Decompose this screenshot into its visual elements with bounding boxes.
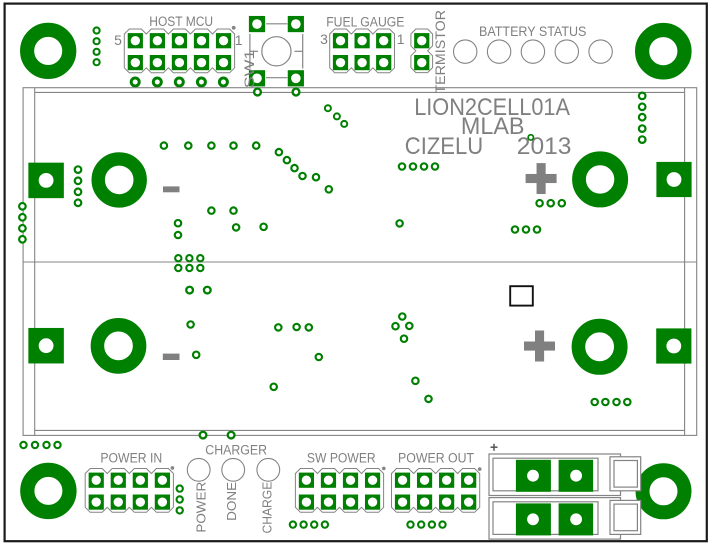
svg-text:2013: 2013 bbox=[517, 133, 572, 160]
svg-text:CHARGER: CHARGER bbox=[205, 442, 267, 457]
svg-text:BATTERY STATUS: BATTERY STATUS bbox=[479, 24, 586, 39]
svg-text:POWER IN: POWER IN bbox=[100, 451, 162, 466]
svg-text:5: 5 bbox=[114, 32, 122, 48]
svg-text:HOST MCU: HOST MCU bbox=[149, 14, 213, 29]
svg-text:CHARGE: CHARGE bbox=[261, 482, 275, 534]
svg-text:3: 3 bbox=[320, 31, 328, 47]
svg-text:DONE: DONE bbox=[225, 482, 239, 521]
svg-text:CIZELU: CIZELU bbox=[405, 133, 483, 160]
svg-text:TERMISTOR: TERMISTOR bbox=[433, 10, 448, 94]
svg-text:1: 1 bbox=[397, 31, 405, 47]
svg-text:SW POWER: SW POWER bbox=[307, 451, 376, 466]
svg-text:SW1: SW1 bbox=[241, 49, 257, 88]
svg-text:POWER: POWER bbox=[195, 482, 209, 533]
svg-text:FUEL GAUGE: FUEL GAUGE bbox=[326, 15, 404, 30]
svg-text:1: 1 bbox=[235, 32, 243, 48]
svg-text:POWER OUT: POWER OUT bbox=[398, 451, 474, 466]
